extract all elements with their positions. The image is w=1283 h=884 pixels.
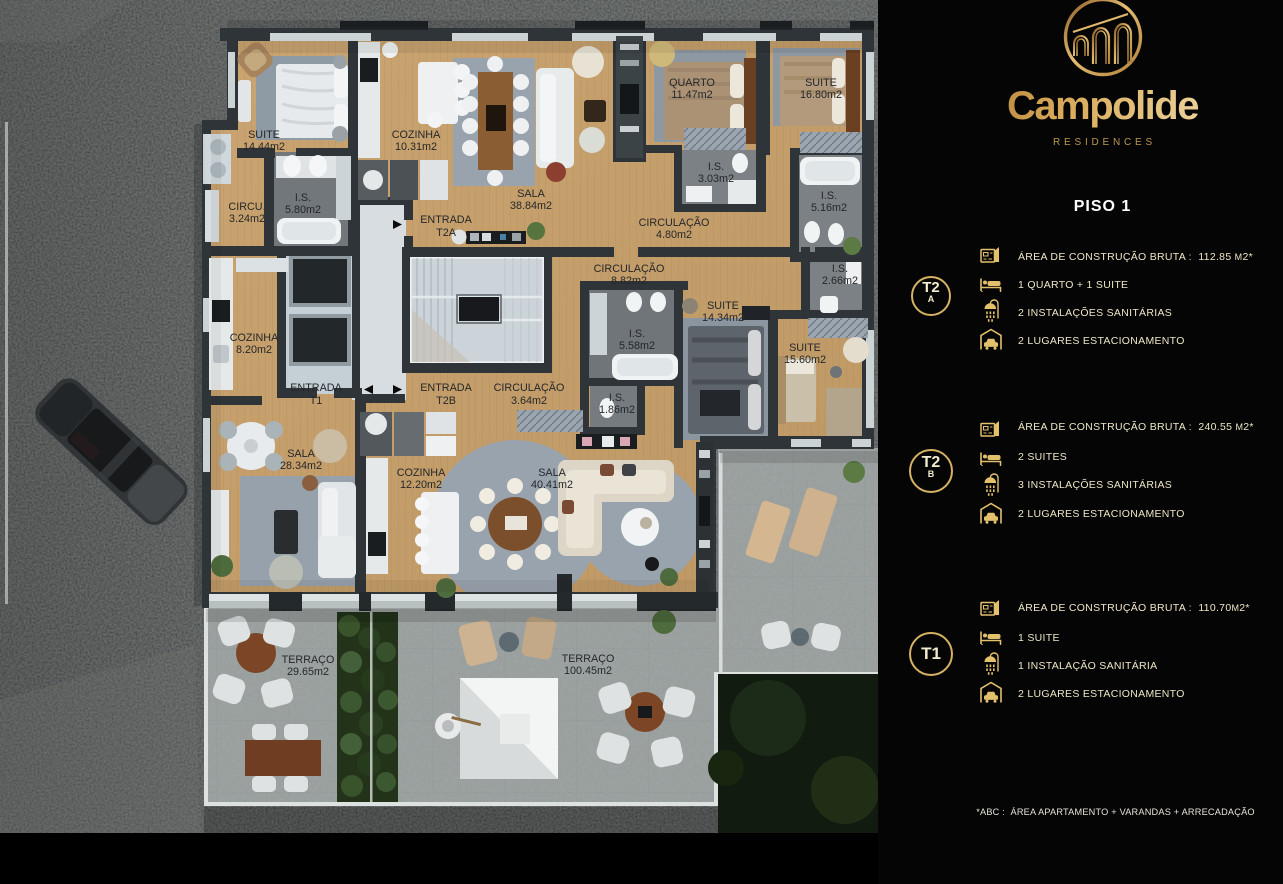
svg-text:TERRAÇO: TERRAÇO (562, 653, 615, 665)
svg-text:16.80m2: 16.80m2 (800, 89, 842, 101)
svg-text:8.20m2: 8.20m2 (236, 344, 272, 356)
svg-text:5.80m2: 5.80m2 (285, 204, 321, 216)
svg-text:28.34m2: 28.34m2 (280, 460, 322, 472)
svg-text:SALA: SALA (538, 467, 566, 479)
svg-text:ENTRADA: ENTRADA (290, 382, 342, 394)
svg-text:SALA: SALA (517, 188, 545, 200)
svg-text:COZINHA: COZINHA (397, 467, 446, 479)
svg-text:T2A: T2A (436, 227, 457, 239)
svg-text:40.41m2: 40.41m2 (531, 479, 573, 491)
svg-text:11.47m2: 11.47m2 (671, 89, 712, 101)
svg-text:CIRCU.: CIRCU. (228, 201, 265, 213)
svg-text:100.45m2: 100.45m2 (564, 665, 612, 677)
svg-text:QUARTO: QUARTO (669, 77, 715, 89)
svg-text:3.03m2: 3.03m2 (698, 173, 734, 185)
svg-text:14.34m2: 14.34m2 (702, 312, 744, 324)
svg-text:10.31m2: 10.31m2 (395, 141, 437, 153)
svg-text:SUITE: SUITE (707, 300, 739, 312)
svg-text:I.S.: I.S. (295, 192, 311, 204)
svg-text:8.82m2: 8.82m2 (611, 275, 647, 287)
svg-text:TERRAÇO: TERRAÇO (282, 654, 335, 666)
svg-text:I.S.: I.S. (629, 328, 645, 340)
svg-text:SUITE: SUITE (805, 77, 837, 89)
svg-text:I.S.: I.S. (609, 392, 625, 404)
svg-text:SALA: SALA (287, 448, 315, 460)
svg-text:SUITE: SUITE (789, 342, 821, 354)
svg-text:29.65m2: 29.65m2 (287, 666, 329, 678)
svg-text:SUITE: SUITE (248, 129, 280, 141)
svg-text:T2B: T2B (436, 395, 456, 407)
svg-text:CIRCULAÇÃO: CIRCULAÇÃO (639, 216, 710, 229)
svg-text:38.84m2: 38.84m2 (510, 200, 552, 212)
svg-text:COZINHA: COZINHA (230, 332, 279, 344)
svg-text:I.S.: I.S. (832, 263, 848, 275)
svg-text:1.86m2: 1.86m2 (599, 404, 635, 416)
svg-text:2.66m2: 2.66m2 (822, 275, 858, 287)
svg-text:3.64m2: 3.64m2 (511, 395, 547, 407)
svg-text:14.44m2: 14.44m2 (243, 141, 285, 153)
svg-text:CIRCULAÇÃO: CIRCULAÇÃO (494, 381, 565, 394)
svg-text:CIRCULAÇÃO: CIRCULAÇÃO (594, 262, 665, 275)
svg-text:T1: T1 (310, 395, 323, 407)
svg-text:12.20m2: 12.20m2 (400, 479, 442, 491)
svg-text:I.S.: I.S. (708, 161, 724, 173)
svg-text:I.S.: I.S. (821, 190, 837, 202)
svg-text:5.58m2: 5.58m2 (619, 340, 655, 352)
svg-text:4.80m2: 4.80m2 (656, 229, 692, 241)
svg-text:5.16m2: 5.16m2 (811, 202, 847, 214)
svg-text:ENTRADA: ENTRADA (420, 214, 472, 226)
svg-text:3.24m2: 3.24m2 (229, 213, 265, 225)
svg-text:ENTRADA: ENTRADA (420, 382, 472, 394)
svg-text:15.60m2: 15.60m2 (784, 354, 826, 366)
svg-text:COZINHA: COZINHA (392, 129, 441, 141)
